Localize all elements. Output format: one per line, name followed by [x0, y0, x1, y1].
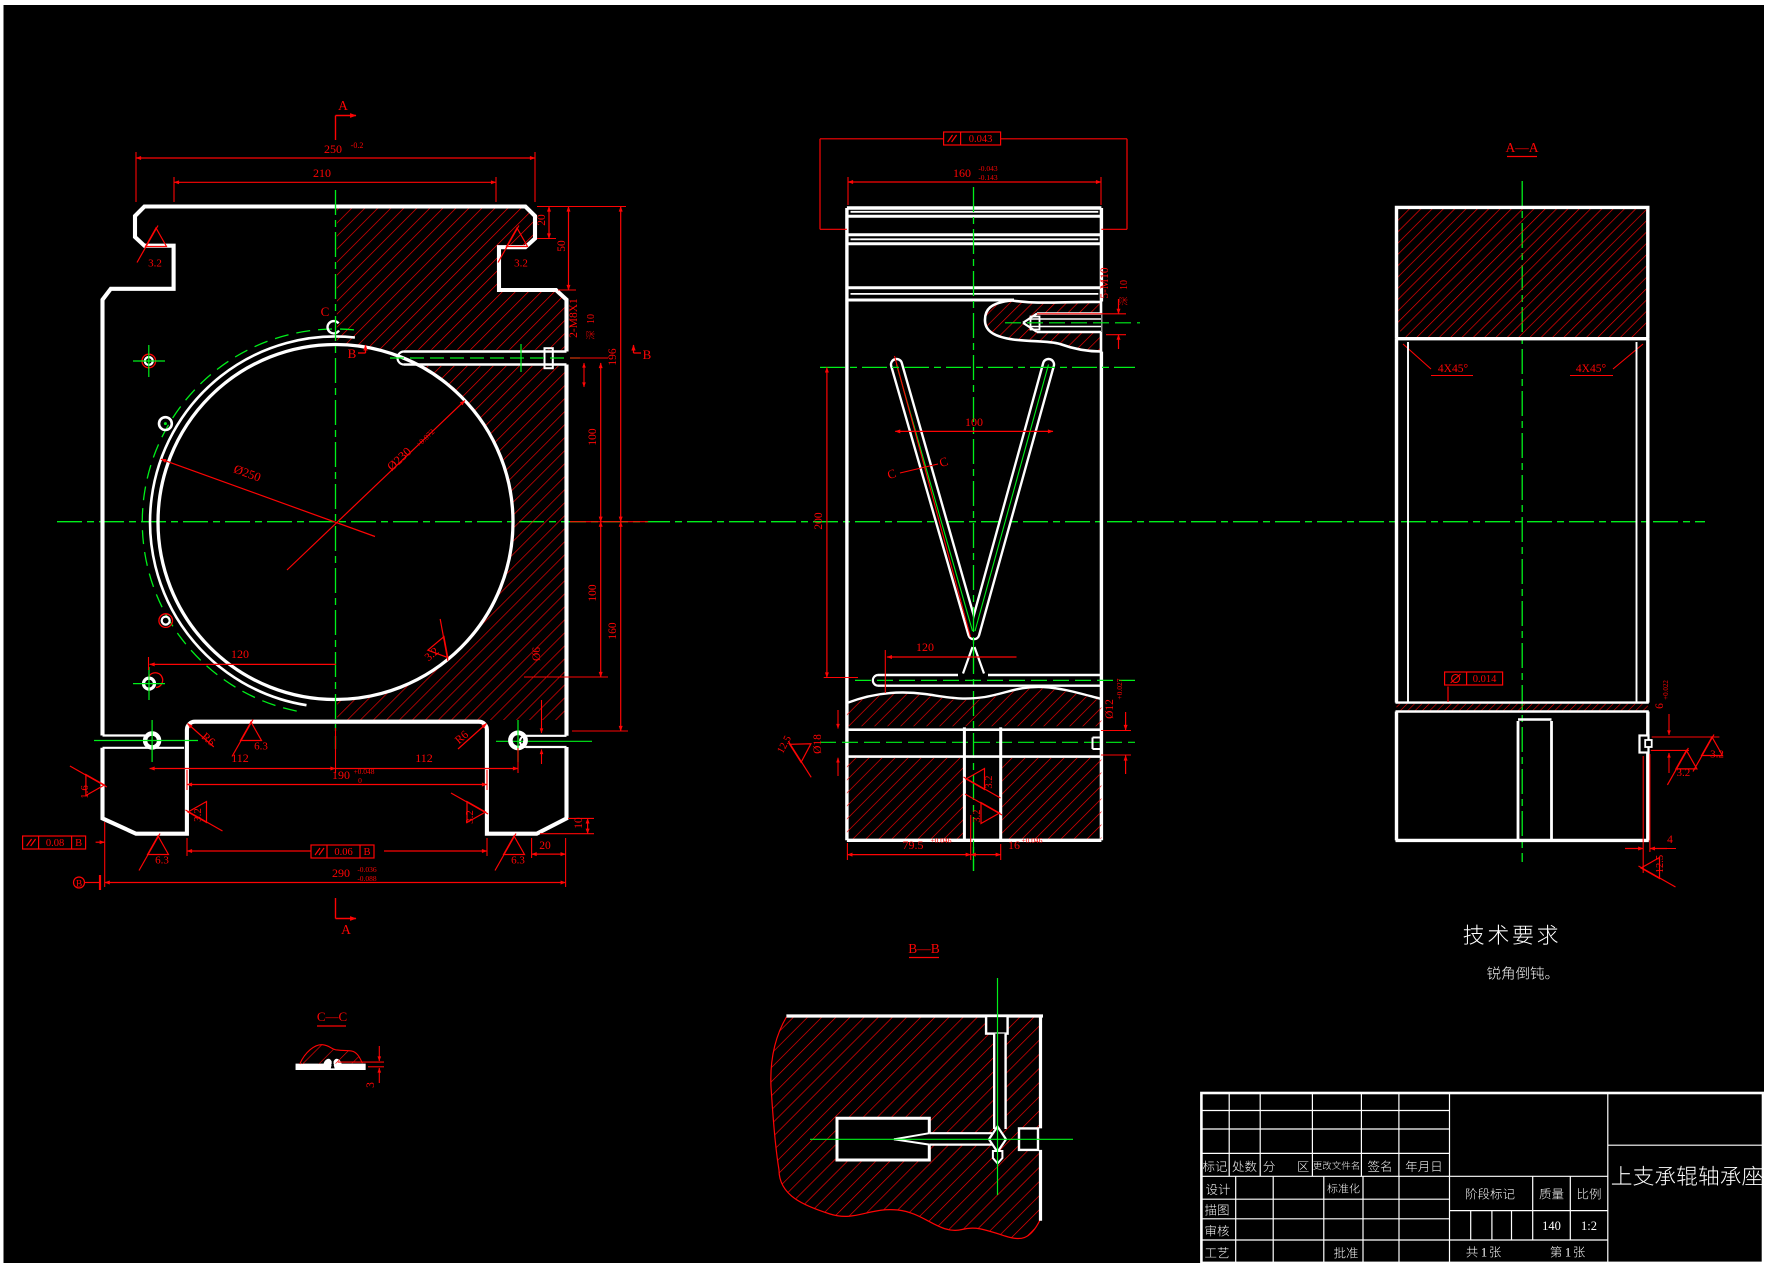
svg-text:5-M10: 5-M10 — [1099, 267, 1111, 299]
svg-text:10: 10 — [586, 314, 597, 324]
svg-text:0.06: 0.06 — [334, 847, 352, 858]
svg-text:0: 0 — [358, 776, 362, 785]
svg-text:+0.027: +0.027 — [1115, 678, 1124, 699]
svg-text:-0.036: -0.036 — [357, 865, 377, 874]
svg-text:20: 20 — [539, 840, 551, 852]
svg-text:3.2: 3.2 — [972, 809, 983, 822]
svg-text:4: 4 — [1667, 834, 1673, 846]
svg-text:1: 1 — [1481, 1246, 1487, 1260]
svg-text:6: 6 — [1654, 703, 1666, 709]
svg-text:A—A: A—A — [1506, 140, 1539, 155]
svg-text:4X45°: 4X45° — [1576, 363, 1607, 375]
svg-text:2-M8X1: 2-M8X1 — [568, 298, 580, 338]
svg-text:3.2: 3.2 — [984, 775, 995, 788]
svg-text:+0.046: +0.046 — [1021, 836, 1042, 845]
svg-text:120: 120 — [231, 647, 249, 661]
svg-text:+0.022: +0.022 — [1662, 680, 1670, 700]
svg-text:1:2: 1:2 — [1581, 1219, 1597, 1233]
svg-text:Ø6: Ø6 — [531, 647, 543, 661]
svg-text:6.3: 6.3 — [254, 741, 268, 753]
svg-text:C: C — [321, 304, 330, 319]
svg-text:200: 200 — [813, 512, 825, 530]
svg-text:3: 3 — [365, 1082, 377, 1088]
svg-text:A: A — [341, 922, 351, 937]
svg-text:160: 160 — [953, 166, 971, 180]
svg-text:196: 196 — [607, 348, 619, 366]
svg-text:-0.143: -0.143 — [978, 173, 998, 182]
svg-text:79.5: 79.5 — [903, 838, 924, 852]
svg-text:+0.048: +0.048 — [353, 767, 374, 776]
svg-text:B: B — [348, 346, 357, 361]
svg-text:-0.043: -0.043 — [978, 164, 998, 173]
svg-text:50: 50 — [556, 240, 568, 252]
svg-text:250: 250 — [324, 142, 342, 156]
svg-text:0.014: 0.014 — [1473, 674, 1497, 685]
svg-text:3.2: 3.2 — [514, 258, 528, 270]
svg-text:120: 120 — [916, 640, 934, 654]
svg-text:3.2: 3.2 — [1677, 767, 1691, 779]
svg-text:Ø18: Ø18 — [812, 734, 824, 754]
svg-text:20: 20 — [536, 214, 548, 226]
svg-text:3.2: 3.2 — [1710, 749, 1724, 761]
svg-text:210: 210 — [313, 166, 331, 180]
svg-text:B—B: B—B — [908, 941, 940, 956]
svg-text:4X45°: 4X45° — [1438, 363, 1469, 375]
svg-text:12.5: 12.5 — [1655, 855, 1666, 873]
svg-text:16: 16 — [1008, 838, 1020, 852]
svg-text:100: 100 — [587, 428, 599, 446]
svg-text:C—C: C—C — [317, 1009, 347, 1024]
svg-text:160: 160 — [607, 622, 619, 640]
svg-text:B: B — [76, 880, 82, 890]
svg-text:Ø12: Ø12 — [1104, 699, 1116, 719]
svg-text:140: 140 — [1542, 1219, 1561, 1233]
svg-text:290: 290 — [332, 866, 350, 880]
svg-text:1.6: 1.6 — [79, 785, 91, 799]
svg-text:0.043: 0.043 — [969, 134, 993, 145]
svg-text:1: 1 — [1565, 1246, 1571, 1260]
svg-text:B: B — [363, 847, 370, 858]
svg-text:112: 112 — [415, 751, 433, 765]
svg-text:A: A — [338, 98, 348, 113]
svg-text:190: 190 — [332, 768, 350, 782]
svg-text:-0.2: -0.2 — [351, 141, 364, 150]
svg-text:100: 100 — [965, 415, 983, 429]
svg-text:3.2: 3.2 — [464, 810, 476, 824]
svg-text:6.3: 6.3 — [511, 855, 525, 867]
svg-text:0.08: 0.08 — [46, 838, 64, 849]
svg-text:10: 10 — [1119, 280, 1130, 290]
svg-text:3.2: 3.2 — [148, 258, 162, 270]
svg-text:6.3: 6.3 — [155, 855, 169, 867]
svg-text:B: B — [643, 347, 652, 362]
svg-text:3.2: 3.2 — [192, 808, 204, 822]
svg-text:+0.046: +0.046 — [930, 836, 951, 845]
svg-text:100: 100 — [587, 584, 599, 602]
svg-text:B: B — [75, 838, 82, 849]
svg-text:-0.088: -0.088 — [357, 874, 377, 883]
